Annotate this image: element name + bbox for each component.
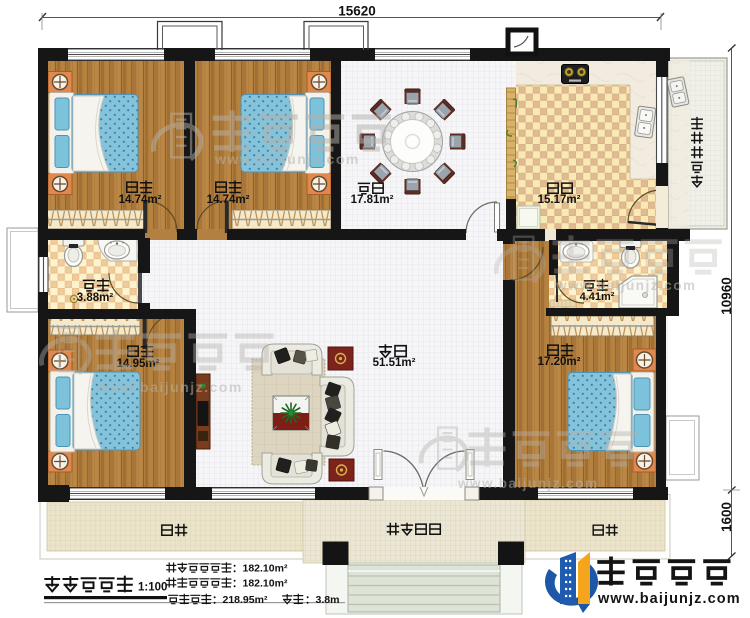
svg-text:：182.10m²: ：182.10m²: [232, 563, 288, 575]
svg-text:14.74m²: 14.74m²: [119, 194, 162, 206]
svg-text:51.51m²: 51.51m²: [373, 357, 416, 369]
svg-text:17.81m²: 17.81m²: [351, 194, 394, 206]
svg-text:www.baijunjz.com: www.baijunjz.com: [555, 278, 697, 293]
svg-text:：3.8m: ：3.8m: [305, 594, 339, 606]
svg-text:1600: 1600: [719, 502, 734, 532]
svg-text:14.74m²: 14.74m²: [207, 194, 250, 206]
svg-text:3.88m²: 3.88m²: [77, 292, 114, 304]
svg-text:www.baijunjz.com: www.baijunjz.com: [97, 379, 243, 395]
svg-text:1:100: 1:100: [138, 582, 167, 594]
svg-text:15.17m²: 15.17m²: [538, 194, 581, 206]
svg-text:：218.95m²: ：218.95m²: [212, 594, 268, 606]
svg-text:：182.10m²: ：182.10m²: [232, 578, 288, 590]
svg-text:17.20m²: 17.20m²: [538, 356, 581, 368]
svg-text:www.baijunjz.com: www.baijunjz.com: [597, 591, 741, 607]
svg-text:15620: 15620: [338, 4, 376, 19]
svg-text:www.baijunjz.com: www.baijunjz.com: [214, 151, 360, 167]
svg-text:www.baijunjz.com: www.baijunjz.com: [457, 476, 599, 491]
svg-text:10960: 10960: [719, 277, 734, 315]
